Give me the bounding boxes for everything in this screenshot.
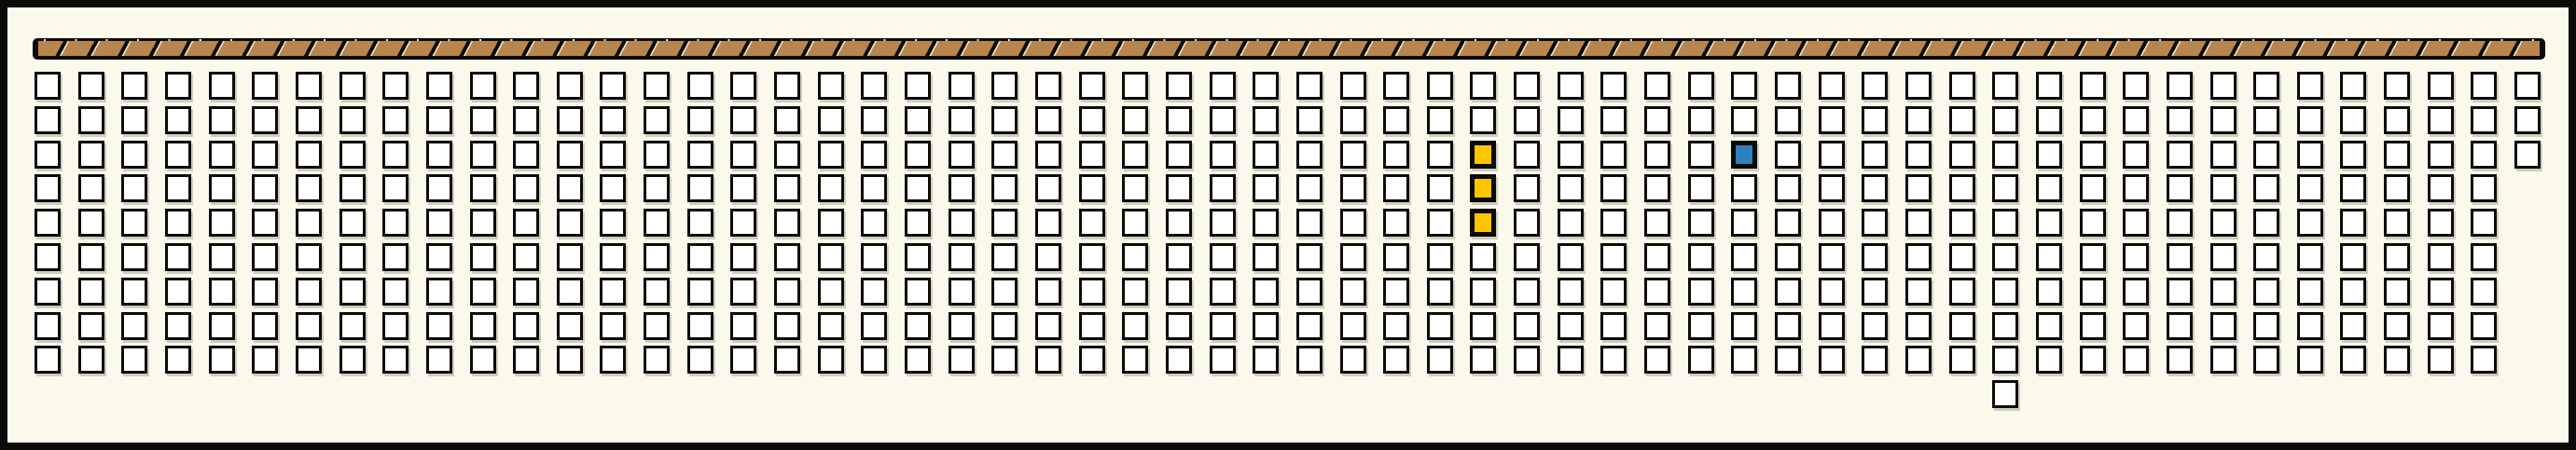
seat[interactable] <box>730 174 756 202</box>
seat[interactable] <box>296 72 322 100</box>
seat[interactable] <box>2471 72 2497 100</box>
seat[interactable] <box>1253 174 1279 202</box>
seat[interactable] <box>774 209 800 237</box>
seat[interactable] <box>2384 278 2410 306</box>
seat[interactable] <box>2036 174 2062 202</box>
seat[interactable] <box>2471 174 2497 202</box>
seat[interactable] <box>121 312 147 340</box>
seat-blue[interactable] <box>1731 141 1757 169</box>
seat[interactable] <box>1949 209 1975 237</box>
seat[interactable] <box>861 209 887 237</box>
seat[interactable] <box>1383 72 1409 100</box>
seat[interactable] <box>1862 141 1888 169</box>
seat[interactable] <box>905 312 931 340</box>
seat[interactable] <box>1775 312 1801 340</box>
seat[interactable] <box>339 72 366 100</box>
seat[interactable] <box>2384 141 2410 169</box>
seat[interactable] <box>2036 312 2062 340</box>
seat[interactable] <box>2080 72 2106 100</box>
seat[interactable] <box>905 174 931 202</box>
seat[interactable] <box>949 106 975 134</box>
seat[interactable] <box>470 312 496 340</box>
seat[interactable] <box>1600 243 1627 271</box>
seat[interactable] <box>1992 380 2018 408</box>
seat[interactable] <box>1905 278 1932 306</box>
seat[interactable] <box>949 346 975 374</box>
seat[interactable] <box>252 346 278 374</box>
seat[interactable] <box>2167 278 2193 306</box>
seat[interactable] <box>644 243 670 271</box>
seat[interactable] <box>470 209 496 237</box>
seat[interactable] <box>2514 141 2541 169</box>
seat[interactable] <box>35 174 61 202</box>
seat[interactable] <box>991 243 1018 271</box>
seat[interactable] <box>905 72 931 100</box>
seat[interactable] <box>730 346 756 374</box>
seat[interactable] <box>2036 106 2062 134</box>
seat[interactable] <box>949 141 975 169</box>
seat[interactable] <box>1992 141 2018 169</box>
seat[interactable] <box>1122 243 1148 271</box>
seat[interactable] <box>1862 312 1888 340</box>
seat[interactable] <box>426 72 452 100</box>
seat[interactable] <box>1558 174 1584 202</box>
seat[interactable] <box>2340 243 2366 271</box>
seat[interactable] <box>426 278 452 306</box>
seat-gold[interactable] <box>1470 141 1496 169</box>
seat[interactable] <box>296 278 322 306</box>
seat[interactable] <box>1383 312 1409 340</box>
seat[interactable] <box>1210 346 1236 374</box>
seat[interactable] <box>1079 346 1105 374</box>
seat[interactable] <box>252 312 278 340</box>
seat[interactable] <box>339 106 366 134</box>
seat[interactable] <box>1644 72 1670 100</box>
seat[interactable] <box>1427 312 1453 340</box>
seat[interactable] <box>1775 174 1801 202</box>
seat[interactable] <box>209 174 235 202</box>
seat[interactable] <box>1514 209 1540 237</box>
seat[interactable] <box>1340 106 1366 134</box>
seat[interactable] <box>600 209 626 237</box>
seat[interactable] <box>1905 346 1932 374</box>
seat[interactable] <box>1775 72 1801 100</box>
seat[interactable] <box>861 106 887 134</box>
seat[interactable] <box>2297 209 2323 237</box>
seat[interactable] <box>470 141 496 169</box>
seat[interactable] <box>1688 278 1714 306</box>
seat[interactable] <box>2253 141 2279 169</box>
seat[interactable] <box>2210 174 2237 202</box>
seat[interactable] <box>426 312 452 340</box>
seat[interactable] <box>1905 209 1932 237</box>
seat[interactable] <box>1035 346 1061 374</box>
seat[interactable] <box>1514 106 1540 134</box>
seat[interactable] <box>1383 346 1409 374</box>
seat[interactable] <box>1992 209 2018 237</box>
seat[interactable] <box>1775 141 1801 169</box>
seat[interactable] <box>35 243 61 271</box>
seat[interactable] <box>1122 106 1148 134</box>
seat[interactable] <box>2253 72 2279 100</box>
seat[interactable] <box>2167 141 2193 169</box>
seat[interactable] <box>991 312 1018 340</box>
seat[interactable] <box>209 346 235 374</box>
seat[interactable] <box>2253 243 2279 271</box>
seat[interactable] <box>1949 278 1975 306</box>
seat[interactable] <box>78 209 104 237</box>
seat[interactable] <box>2428 72 2454 100</box>
seat[interactable] <box>1122 209 1148 237</box>
seat[interactable] <box>1296 106 1323 134</box>
seat[interactable] <box>296 243 322 271</box>
seat[interactable] <box>1166 243 1192 271</box>
seat[interactable] <box>426 141 452 169</box>
seat[interactable] <box>2384 174 2410 202</box>
seat[interactable] <box>557 243 583 271</box>
seat[interactable] <box>1122 278 1148 306</box>
seat[interactable] <box>687 243 713 271</box>
seat[interactable] <box>121 346 147 374</box>
seat[interactable] <box>35 141 61 169</box>
seat[interactable] <box>1383 243 1409 271</box>
seat[interactable] <box>2471 106 2497 134</box>
seat[interactable] <box>1558 243 1584 271</box>
seat[interactable] <box>600 141 626 169</box>
seat[interactable] <box>2123 106 2149 134</box>
seat[interactable] <box>1514 312 1540 340</box>
seat[interactable] <box>1862 174 1888 202</box>
seat[interactable] <box>991 141 1018 169</box>
seat[interactable] <box>2297 346 2323 374</box>
seat[interactable] <box>1427 72 1453 100</box>
seat[interactable] <box>600 106 626 134</box>
seat[interactable] <box>35 72 61 100</box>
seat[interactable] <box>774 174 800 202</box>
seat[interactable] <box>1210 312 1236 340</box>
seat[interactable] <box>2080 174 2106 202</box>
seat[interactable] <box>382 106 409 134</box>
seat[interactable] <box>470 243 496 271</box>
seat[interactable] <box>687 106 713 134</box>
seat[interactable] <box>1122 346 1148 374</box>
seat[interactable] <box>165 141 191 169</box>
seat[interactable] <box>1340 243 1366 271</box>
seat[interactable] <box>1166 278 1192 306</box>
seat[interactable] <box>1296 243 1323 271</box>
seat[interactable] <box>1470 346 1496 374</box>
seat[interactable] <box>818 106 844 134</box>
seat[interactable] <box>35 106 61 134</box>
seat[interactable] <box>121 209 147 237</box>
seat[interactable] <box>1862 243 1888 271</box>
seat[interactable] <box>730 72 756 100</box>
seat[interactable] <box>2297 174 2323 202</box>
seat[interactable] <box>861 278 887 306</box>
seat[interactable] <box>165 278 191 306</box>
seat[interactable] <box>1992 312 2018 340</box>
seat[interactable] <box>2210 209 2237 237</box>
seat[interactable] <box>1819 278 1845 306</box>
seat[interactable] <box>600 72 626 100</box>
seat[interactable] <box>818 209 844 237</box>
seat[interactable] <box>861 174 887 202</box>
seat[interactable] <box>1992 174 2018 202</box>
seat[interactable] <box>1340 278 1366 306</box>
seat[interactable] <box>1949 346 1975 374</box>
seat[interactable] <box>1644 209 1670 237</box>
seat[interactable] <box>1644 243 1670 271</box>
seat[interactable] <box>2428 278 2454 306</box>
seat[interactable] <box>1340 346 1366 374</box>
seat[interactable] <box>121 141 147 169</box>
seat[interactable] <box>1035 106 1061 134</box>
seat[interactable] <box>121 72 147 100</box>
seat[interactable] <box>513 209 539 237</box>
seat[interactable] <box>1427 174 1453 202</box>
seat[interactable] <box>1775 278 1801 306</box>
seat[interactable] <box>2080 278 2106 306</box>
seat[interactable] <box>252 278 278 306</box>
seat[interactable] <box>2167 106 2193 134</box>
seat[interactable] <box>774 72 800 100</box>
seat[interactable] <box>991 106 1018 134</box>
seat[interactable] <box>1470 312 1496 340</box>
seat[interactable] <box>2471 312 2497 340</box>
seat[interactable] <box>1079 243 1105 271</box>
seat[interactable] <box>339 209 366 237</box>
seat[interactable] <box>774 106 800 134</box>
seat[interactable] <box>861 141 887 169</box>
seat[interactable] <box>2340 174 2366 202</box>
seat[interactable] <box>1470 106 1496 134</box>
seat[interactable] <box>2340 141 2366 169</box>
seat[interactable] <box>1731 106 1757 134</box>
seat[interactable] <box>1731 278 1757 306</box>
seat[interactable] <box>1688 209 1714 237</box>
seat[interactable] <box>1296 209 1323 237</box>
seat[interactable] <box>991 278 1018 306</box>
seat[interactable] <box>296 141 322 169</box>
seat[interactable] <box>1992 278 2018 306</box>
seat[interactable] <box>209 209 235 237</box>
seat[interactable] <box>1992 243 2018 271</box>
seat[interactable] <box>1819 106 1845 134</box>
seat[interactable] <box>1905 141 1932 169</box>
seat[interactable] <box>513 174 539 202</box>
seat[interactable] <box>382 243 409 271</box>
seat[interactable] <box>339 141 366 169</box>
seat[interactable] <box>1340 174 1366 202</box>
seat[interactable] <box>1775 106 1801 134</box>
seat[interactable] <box>2340 346 2366 374</box>
seat[interactable] <box>1992 72 2018 100</box>
seat[interactable] <box>426 106 452 134</box>
seat[interactable] <box>949 243 975 271</box>
seat[interactable] <box>1558 346 1584 374</box>
seat[interactable] <box>78 106 104 134</box>
seat[interactable] <box>2123 72 2149 100</box>
seat[interactable] <box>1166 141 1192 169</box>
seat[interactable] <box>513 106 539 134</box>
seat[interactable] <box>1122 312 1148 340</box>
seat[interactable] <box>2167 209 2193 237</box>
seat[interactable] <box>121 106 147 134</box>
seat[interactable] <box>600 312 626 340</box>
seat[interactable] <box>1470 278 1496 306</box>
seat[interactable] <box>818 141 844 169</box>
seat[interactable] <box>2428 209 2454 237</box>
seat[interactable] <box>2123 278 2149 306</box>
seat[interactable] <box>644 312 670 340</box>
seat[interactable] <box>2297 243 2323 271</box>
seat[interactable] <box>513 278 539 306</box>
seat[interactable] <box>2123 312 2149 340</box>
seat[interactable] <box>991 346 1018 374</box>
seat[interactable] <box>1644 278 1670 306</box>
seat[interactable] <box>905 243 931 271</box>
seat[interactable] <box>730 106 756 134</box>
seat[interactable] <box>470 72 496 100</box>
seat[interactable] <box>1166 209 1192 237</box>
seat[interactable] <box>1688 141 1714 169</box>
seat[interactable] <box>35 278 61 306</box>
seat[interactable] <box>1688 106 1714 134</box>
seat[interactable] <box>513 312 539 340</box>
seat[interactable] <box>1035 312 1061 340</box>
seat[interactable] <box>1253 141 1279 169</box>
seat[interactable] <box>949 312 975 340</box>
seat[interactable] <box>991 209 1018 237</box>
seat[interactable] <box>1296 312 1323 340</box>
seat[interactable] <box>2210 141 2237 169</box>
seat[interactable] <box>2167 346 2193 374</box>
seat[interactable] <box>426 346 452 374</box>
seat[interactable] <box>1992 346 2018 374</box>
seat[interactable] <box>557 141 583 169</box>
seat[interactable] <box>2036 346 2062 374</box>
seat[interactable] <box>2384 72 2410 100</box>
seat[interactable] <box>818 346 844 374</box>
seat[interactable] <box>2167 174 2193 202</box>
seat[interactable] <box>1296 174 1323 202</box>
seat[interactable] <box>730 243 756 271</box>
seat[interactable] <box>905 209 931 237</box>
seat[interactable] <box>2123 209 2149 237</box>
seat[interactable] <box>2080 141 2106 169</box>
seat[interactable] <box>2340 209 2366 237</box>
seat[interactable] <box>296 312 322 340</box>
seat[interactable] <box>1035 209 1061 237</box>
seat[interactable] <box>1079 278 1105 306</box>
seat[interactable] <box>1644 312 1670 340</box>
seat[interactable] <box>296 174 322 202</box>
seat[interactable] <box>1731 209 1757 237</box>
seat[interactable] <box>818 243 844 271</box>
seat[interactable] <box>818 72 844 100</box>
seat[interactable] <box>1210 209 1236 237</box>
seat[interactable] <box>1166 174 1192 202</box>
seat[interactable] <box>1296 278 1323 306</box>
seat[interactable] <box>1558 278 1584 306</box>
seat[interactable] <box>339 278 366 306</box>
seat[interactable] <box>1731 346 1757 374</box>
seat[interactable] <box>470 174 496 202</box>
seat[interactable] <box>1253 209 1279 237</box>
seat[interactable] <box>2384 106 2410 134</box>
seat[interactable] <box>949 72 975 100</box>
seat[interactable] <box>426 209 452 237</box>
seat[interactable] <box>382 278 409 306</box>
seat[interactable] <box>1079 174 1105 202</box>
seat[interactable] <box>382 141 409 169</box>
seat[interactable] <box>1122 174 1148 202</box>
seat[interactable] <box>78 278 104 306</box>
seat[interactable] <box>78 141 104 169</box>
seat[interactable] <box>121 278 147 306</box>
seat[interactable] <box>1427 106 1453 134</box>
seat[interactable] <box>470 106 496 134</box>
seat[interactable] <box>1514 141 1540 169</box>
seat[interactable] <box>2036 72 2062 100</box>
seat[interactable] <box>2123 174 2149 202</box>
seat[interactable] <box>382 312 409 340</box>
seat[interactable] <box>1035 174 1061 202</box>
seat[interactable] <box>991 174 1018 202</box>
seat[interactable] <box>1427 141 1453 169</box>
seat[interactable] <box>252 72 278 100</box>
seat[interactable] <box>1383 174 1409 202</box>
seat[interactable] <box>1122 141 1148 169</box>
seat[interactable] <box>382 72 409 100</box>
seat[interactable] <box>382 209 409 237</box>
seat[interactable] <box>296 209 322 237</box>
seat[interactable] <box>1862 346 1888 374</box>
seat[interactable] <box>1558 106 1584 134</box>
seat[interactable] <box>1035 243 1061 271</box>
seat[interactable] <box>991 72 1018 100</box>
seat[interactable] <box>2210 346 2237 374</box>
seat[interactable] <box>2036 141 2062 169</box>
seat[interactable] <box>1949 174 1975 202</box>
seat[interactable] <box>1296 72 1323 100</box>
seat[interactable] <box>1731 72 1757 100</box>
seat[interactable] <box>774 141 800 169</box>
seat[interactable] <box>1862 209 1888 237</box>
seat[interactable] <box>1949 72 1975 100</box>
seat[interactable] <box>35 209 61 237</box>
seat[interactable] <box>774 278 800 306</box>
seat[interactable] <box>1949 312 1975 340</box>
seat[interactable] <box>687 141 713 169</box>
seat[interactable] <box>1775 243 1801 271</box>
seat[interactable] <box>252 209 278 237</box>
seat[interactable] <box>513 141 539 169</box>
seat[interactable] <box>1862 278 1888 306</box>
seat[interactable] <box>1383 106 1409 134</box>
seat[interactable] <box>1688 174 1714 202</box>
seat[interactable] <box>2297 72 2323 100</box>
seat[interactable] <box>1253 278 1279 306</box>
seat[interactable] <box>861 312 887 340</box>
seat[interactable] <box>1819 72 1845 100</box>
seat[interactable] <box>905 346 931 374</box>
seat[interactable] <box>2297 312 2323 340</box>
seat[interactable] <box>2384 243 2410 271</box>
seat[interactable] <box>1383 141 1409 169</box>
seat[interactable] <box>1905 174 1932 202</box>
seat[interactable] <box>2167 312 2193 340</box>
